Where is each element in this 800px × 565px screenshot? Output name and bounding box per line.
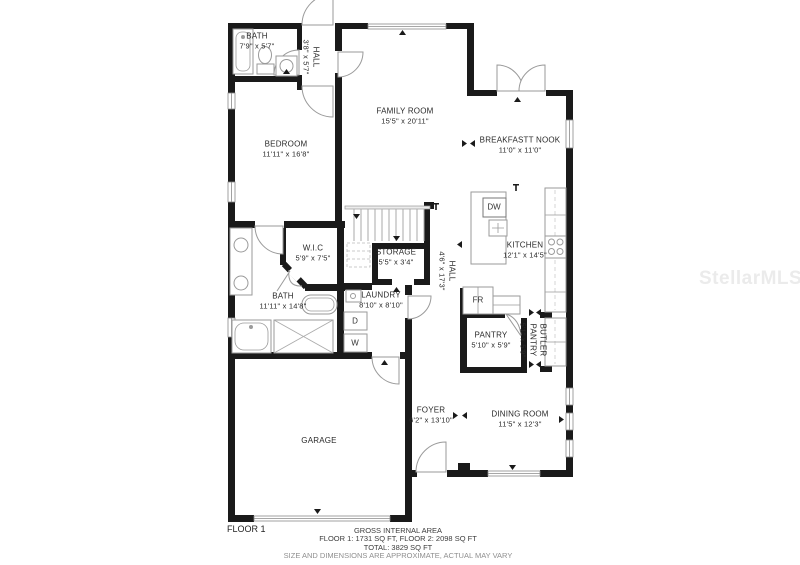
footer: GROSS INTERNAL AREA FLOOR 1: 1731 SQ FT,…: [198, 527, 598, 560]
windows: [228, 24, 573, 521]
footer-disclaimer: SIZE AND DIMENSIONS ARE APPROXIMATE, ACT…: [198, 552, 598, 560]
room-label-dining-room: DINING ROOM 11'5" x 12'3": [491, 409, 548, 428]
room-label-pantry: PANTRY 5'10" x 5'9": [471, 330, 510, 349]
laundry-hall-door: [408, 296, 431, 319]
room-label-laundry: LAUNDRY 8'10" x 8'10": [359, 290, 403, 309]
room-label-hall-upper: HALL 3'8" x 5'7": [301, 40, 320, 75]
nook-double-door-right: [519, 65, 545, 91]
exterior-door-top: [302, 0, 333, 25]
bedroom-bath-door: [255, 226, 283, 254]
hall-bedroom-door: [302, 86, 333, 117]
laundry-garage-door: [372, 357, 399, 384]
fridge-label: FR: [473, 296, 484, 305]
room-label-kitchen: KITCHEN 12'1" x 14'5": [503, 240, 547, 259]
walls: [228, 23, 573, 522]
watermark: StellarMLS: [699, 268, 800, 290]
dishwasher-label: DW: [487, 203, 500, 212]
room-label-family-room: FAMILY ROOM 15'5" x 20'11": [376, 106, 433, 125]
room-label-bedroom: BEDROOM 11'11" x 16'8": [263, 139, 310, 158]
floorplan-page: { "watermark": "StellarMLS", "floor_labe…: [0, 0, 800, 565]
room-label-foyer: FOYER 6'2" x 13'10": [409, 405, 453, 424]
washer-label: W: [351, 339, 359, 348]
hall-family-door: [338, 52, 363, 77]
stair-treads: [354, 209, 424, 241]
stove-icon: [545, 236, 566, 258]
room-label-bath-upper: BATH 7'9" x 5'7": [240, 31, 275, 50]
room-label-hall-main: HALL 4'6" x 17'3": [437, 251, 456, 290]
room-label-storage: STORAGE 5'5" x 3'4": [376, 247, 416, 266]
room-label-bath-main: BATH 11'11" x 14'8": [260, 291, 307, 310]
room-label-garage: GARAGE: [301, 436, 336, 446]
dryer-label: D: [352, 317, 358, 326]
floorplan-drawing: [0, 0, 800, 565]
wic-door-gap: [290, 270, 299, 279]
room-label-breakfast-nook: BREAKFASTT NOOK 11'0" x 11'0": [480, 135, 561, 154]
room-label-wic: W.I.C 5'9" x 7'5": [296, 243, 331, 262]
room-label-butler-pantry: BUTLER PANTRY 5'1" x 5'9": [518, 316, 547, 364]
front-door: [416, 442, 446, 472]
